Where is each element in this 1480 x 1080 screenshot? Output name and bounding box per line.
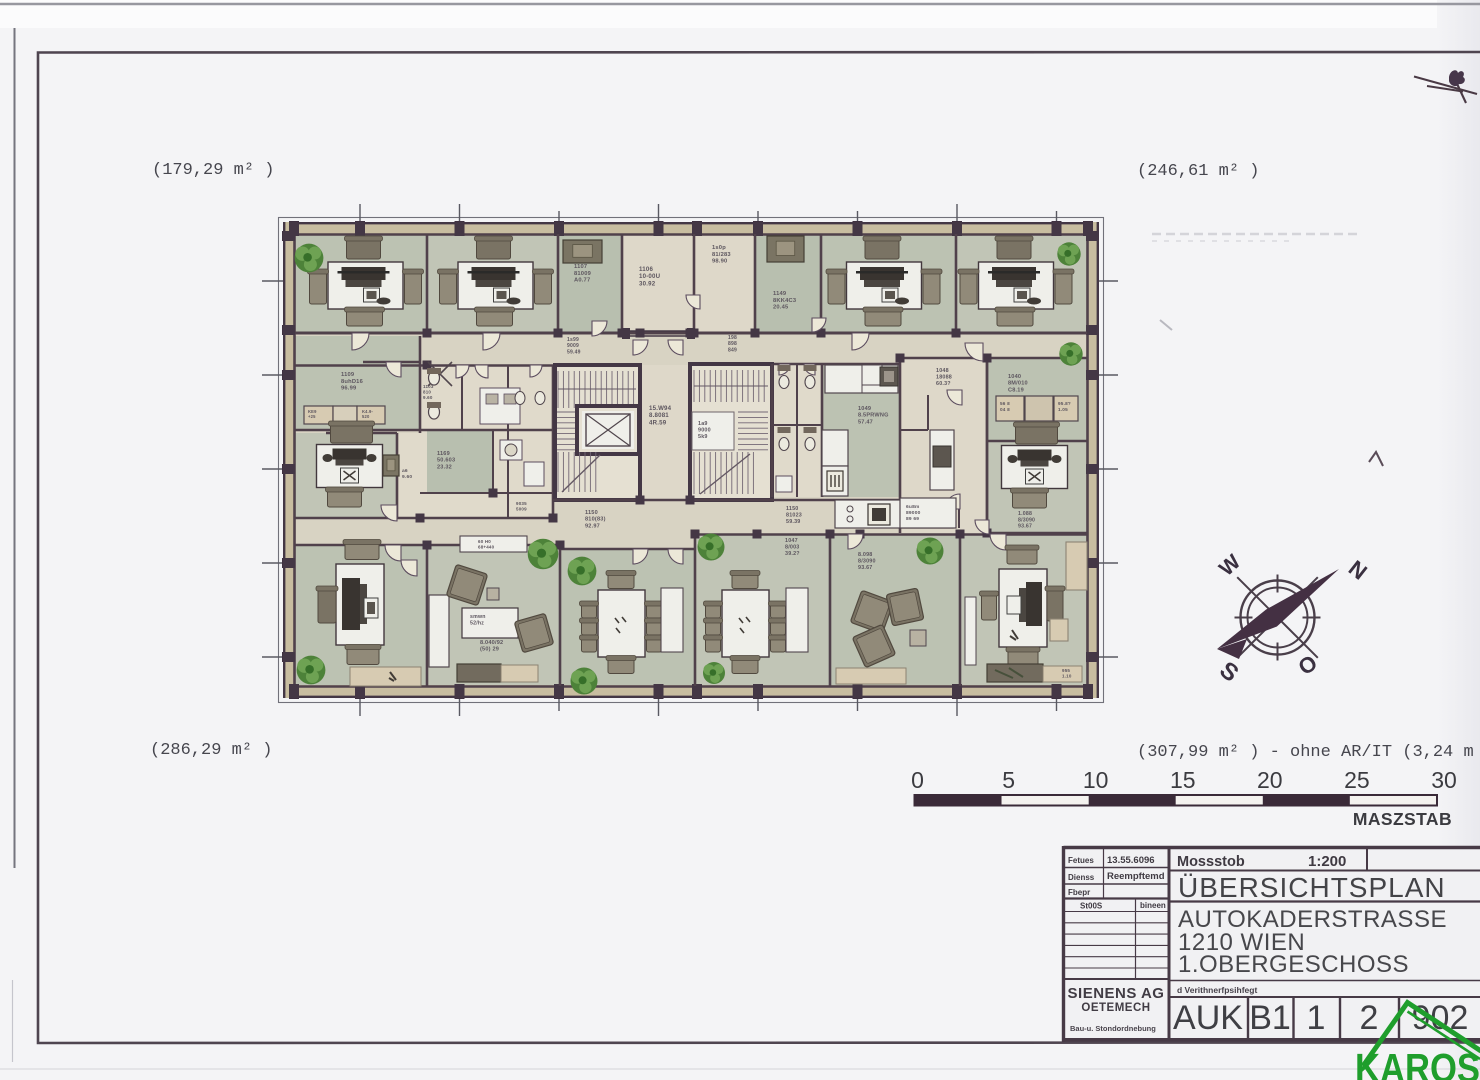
svg-text:1.OBERGESCHOSS: 1.OBERGESCHOSS xyxy=(1178,951,1409,978)
svg-text:bineen: bineen xyxy=(1140,901,1166,910)
svg-text:30: 30 xyxy=(1431,767,1457,793)
svg-text:MASZSTAB: MASZSTAB xyxy=(1353,809,1452,829)
svg-text:KAROS: KAROS xyxy=(1355,1045,1480,1080)
svg-text:5: 5 xyxy=(1002,767,1015,793)
svg-text:1:200: 1:200 xyxy=(1308,853,1346,870)
svg-text:Fetues: Fetues xyxy=(1068,856,1094,865)
svg-text:20: 20 xyxy=(1257,767,1283,793)
svg-text:15: 15 xyxy=(1170,767,1196,793)
svg-text:Bau-u. Stondordnebung: Bau-u. Stondordnebung xyxy=(1070,1024,1156,1033)
svg-text:OETEMECH: OETEMECH xyxy=(1081,1002,1150,1014)
svg-text:0: 0 xyxy=(911,767,924,793)
svg-text:Reempftemd: Reempftemd xyxy=(1107,871,1165,882)
svg-text:B1: B1 xyxy=(1249,999,1291,1037)
svg-text:25: 25 xyxy=(1344,767,1370,793)
svg-text:Dienss: Dienss xyxy=(1068,873,1095,882)
svg-text:Mossstob: Mossstob xyxy=(1177,854,1245,870)
svg-text:(286,29 m² ): (286,29 m² ) xyxy=(150,741,272,760)
svg-text:Fbepr: Fbepr xyxy=(1068,888,1090,897)
svg-text:13.55.6096: 13.55.6096 xyxy=(1107,855,1155,866)
svg-text:SIENENS AG: SIENENS AG xyxy=(1068,985,1165,1002)
svg-text:2: 2 xyxy=(1360,999,1379,1037)
svg-text:AUK: AUK xyxy=(1173,999,1243,1037)
svg-text:d Verithnerfpsihfegt: d Verithnerfpsihfegt xyxy=(1177,985,1257,995)
svg-text:(179,29 m² ): (179,29 m² ) xyxy=(152,161,274,180)
svg-text:(246,61 m² ): (246,61 m² ) xyxy=(1137,162,1259,181)
svg-text:ÜBERSICHTSPLAN: ÜBERSICHTSPLAN xyxy=(1178,872,1446,903)
svg-text:St00S: St00S xyxy=(1080,902,1103,911)
svg-text:(307,99 m² ) - ohne AR/IT (3,2: (307,99 m² ) - ohne AR/IT (3,24 m xyxy=(1137,743,1474,762)
svg-text:1: 1 xyxy=(1307,999,1326,1037)
svg-text:10: 10 xyxy=(1083,767,1109,793)
